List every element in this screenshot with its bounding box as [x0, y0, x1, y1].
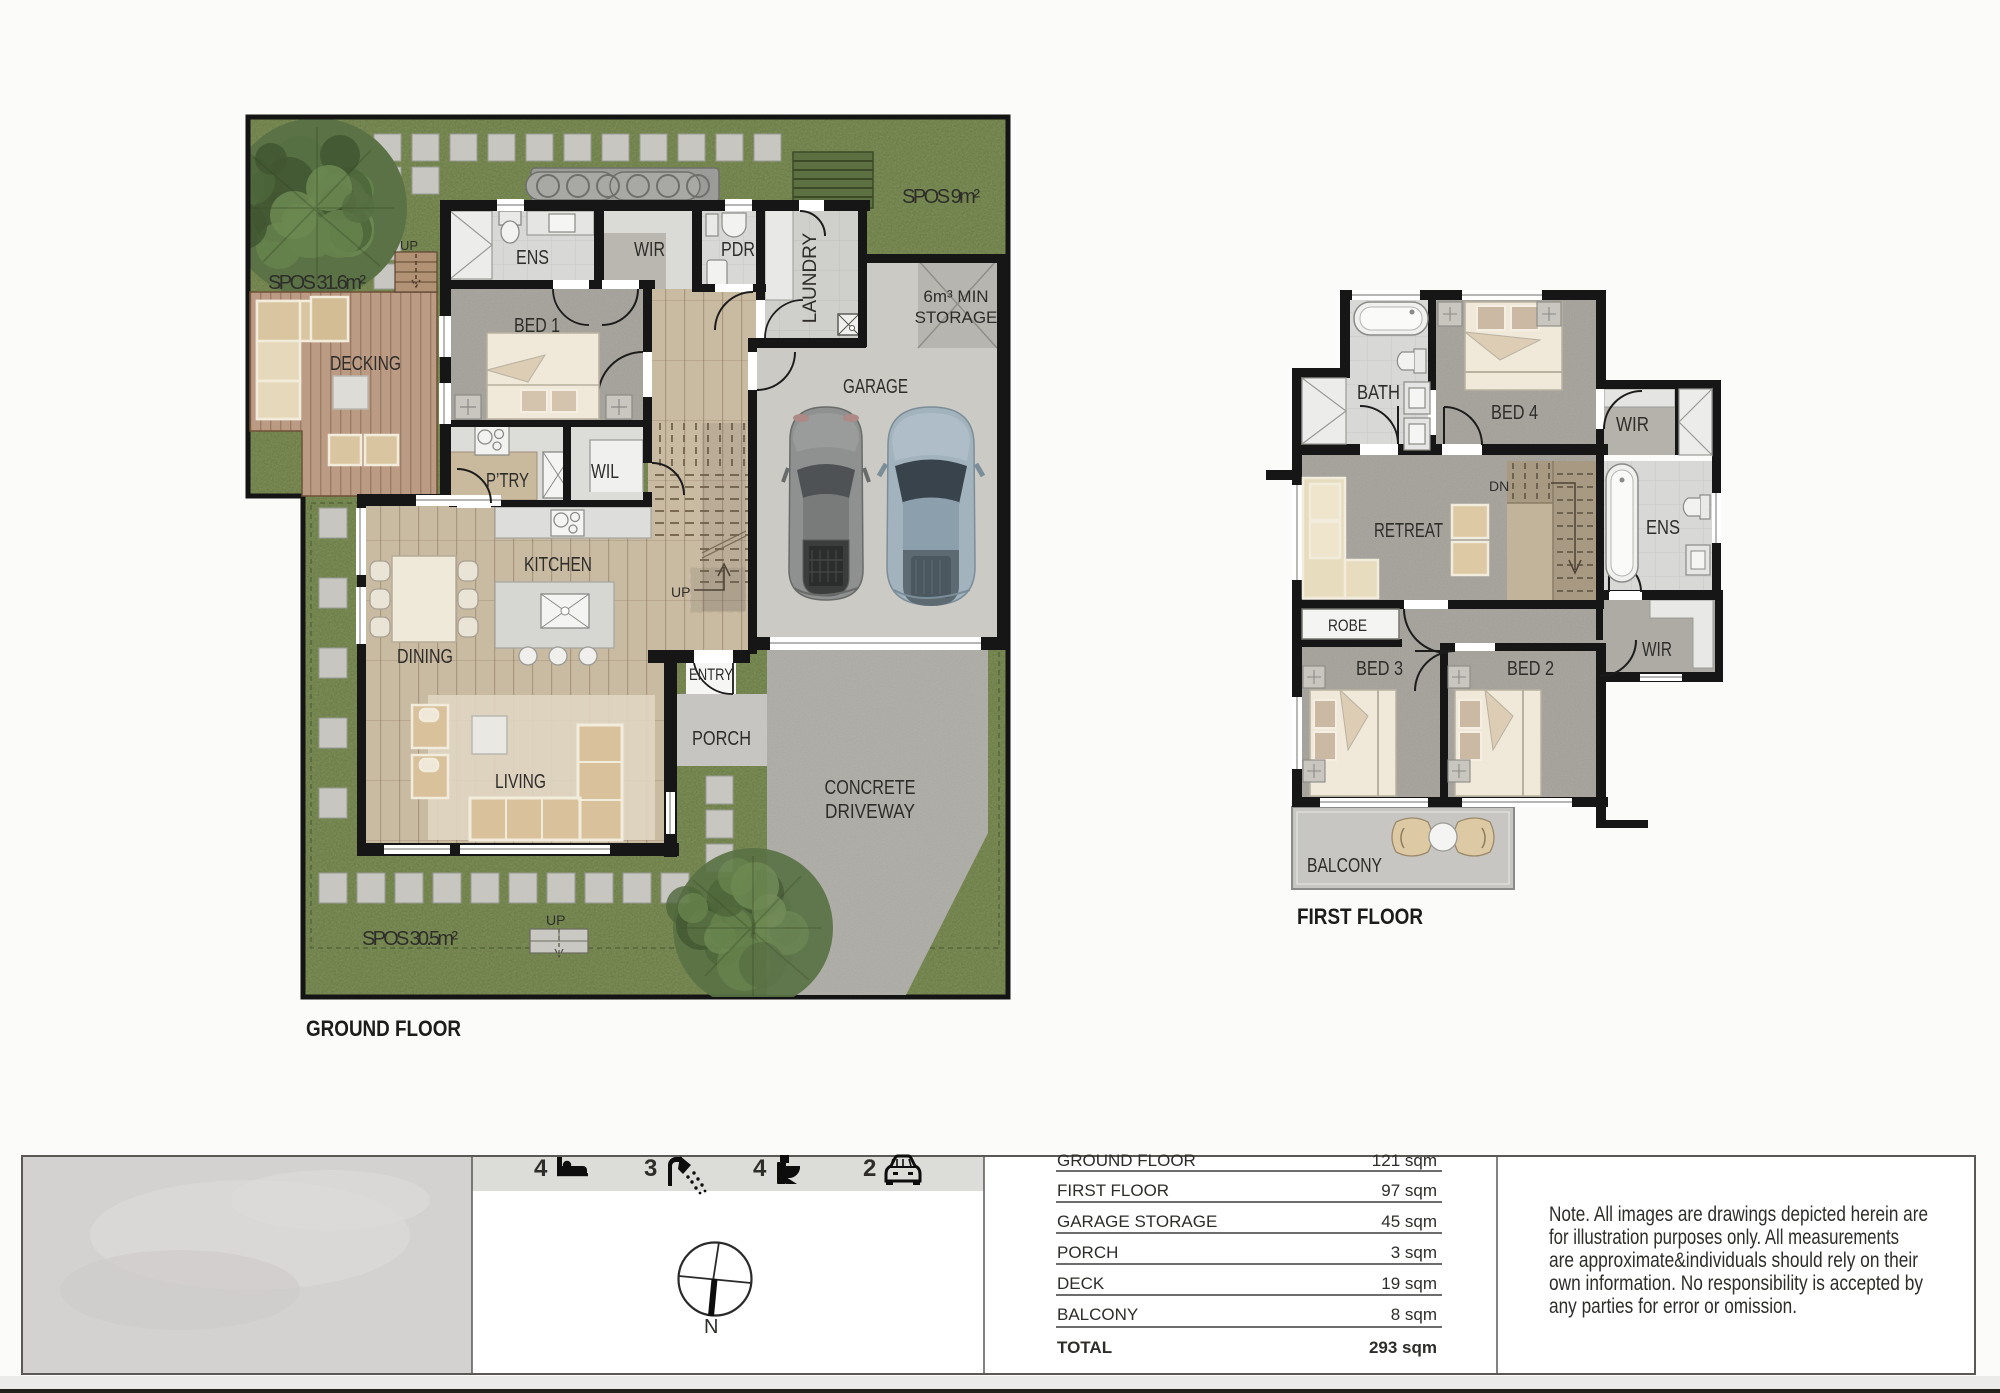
- svg-text:SPOS 30.5m²: SPOS 30.5m²: [362, 928, 458, 950]
- svg-text:ROBE: ROBE: [1328, 616, 1367, 635]
- svg-text:GROUND FLOOR: GROUND FLOOR: [1057, 1151, 1196, 1170]
- svg-text:121 sqm: 121 sqm: [1372, 1151, 1437, 1170]
- svg-text:KITCHEN: KITCHEN: [524, 554, 592, 576]
- svg-text:TOTAL: TOTAL: [1057, 1338, 1112, 1357]
- svg-text:2: 2: [863, 1155, 876, 1182]
- svg-text:8 sqm: 8 sqm: [1391, 1305, 1437, 1324]
- svg-text:UP: UP: [671, 584, 690, 600]
- svg-text:SPOS 31.6m²: SPOS 31.6m²: [268, 272, 366, 294]
- svg-text:RETREAT: RETREAT: [1374, 520, 1443, 542]
- svg-text:GARAGE: GARAGE: [843, 376, 908, 398]
- svg-text:UP: UP: [400, 238, 418, 253]
- svg-text:PORCH: PORCH: [1057, 1243, 1118, 1262]
- svg-text:3 sqm: 3 sqm: [1391, 1243, 1437, 1262]
- svg-text:WIR: WIR: [1616, 414, 1649, 436]
- svg-text:SPOS 9m²: SPOS 9m²: [902, 186, 980, 208]
- svg-text:DECKING: DECKING: [330, 353, 401, 375]
- svg-text:3: 3: [644, 1155, 657, 1182]
- svg-text:ENS: ENS: [1646, 517, 1680, 539]
- svg-text:PORCH: PORCH: [692, 728, 751, 750]
- svg-text:FIRST FLOOR: FIRST FLOOR: [1297, 904, 1423, 929]
- svg-text:for illustration purposes only: for illustration purposes only. All meas…: [1549, 1226, 1899, 1249]
- svg-text:BED 4: BED 4: [1491, 402, 1538, 424]
- svg-text:45 sqm: 45 sqm: [1381, 1212, 1437, 1231]
- svg-text:WIR: WIR: [634, 239, 665, 261]
- svg-text:PDR: PDR: [721, 239, 755, 261]
- svg-text:LIVING: LIVING: [495, 771, 546, 793]
- svg-text:4: 4: [534, 1155, 548, 1182]
- svg-text:UP: UP: [546, 912, 565, 928]
- svg-text:BALCONY: BALCONY: [1307, 855, 1382, 877]
- svg-text:LAUNDRY: LAUNDRY: [800, 232, 821, 323]
- svg-text:are approximate&individuals sh: are approximate&individuals should rely …: [1549, 1249, 1918, 1272]
- svg-text:4: 4: [753, 1155, 767, 1182]
- svg-text:P’TRY: P’TRY: [486, 470, 529, 492]
- svg-text:N: N: [704, 1316, 718, 1338]
- svg-text:ENTRY: ENTRY: [689, 665, 733, 684]
- svg-text:BALCONY: BALCONY: [1057, 1305, 1138, 1324]
- svg-text:own information. No responsibi: own information. No responsibility is ac…: [1549, 1272, 1923, 1295]
- svg-text:BED 3: BED 3: [1356, 658, 1403, 680]
- svg-text:97 sqm: 97 sqm: [1381, 1181, 1437, 1200]
- svg-text:WIL: WIL: [591, 461, 619, 483]
- svg-text:Note. All images are drawings: Note. All images are drawings depicted h…: [1549, 1203, 1928, 1226]
- svg-text:DECK: DECK: [1057, 1274, 1105, 1293]
- svg-text:FIRST FLOOR: FIRST FLOOR: [1057, 1181, 1169, 1200]
- svg-text:GROUND FLOOR: GROUND FLOOR: [306, 1016, 461, 1041]
- svg-text:ENS: ENS: [516, 247, 549, 269]
- svg-text:19 sqm: 19 sqm: [1381, 1274, 1437, 1293]
- svg-text:STORAGE: STORAGE: [915, 308, 998, 327]
- svg-text:WIR: WIR: [1642, 639, 1672, 661]
- svg-text:DN: DN: [1489, 478, 1509, 494]
- svg-text:BATH: BATH: [1357, 382, 1400, 404]
- svg-text:293 sqm: 293 sqm: [1369, 1338, 1437, 1357]
- svg-text:GARAGE STORAGE: GARAGE STORAGE: [1057, 1212, 1217, 1231]
- svg-text:DINING: DINING: [397, 646, 453, 668]
- svg-text:BED 2: BED 2: [1507, 658, 1554, 680]
- svg-text:DRIVEWAY: DRIVEWAY: [825, 801, 915, 823]
- svg-text:any parties for error or omiss: any parties for error or omission.: [1549, 1295, 1797, 1318]
- svg-text:6m³ MIN: 6m³ MIN: [923, 287, 988, 306]
- svg-text:CONCRETE: CONCRETE: [825, 777, 916, 799]
